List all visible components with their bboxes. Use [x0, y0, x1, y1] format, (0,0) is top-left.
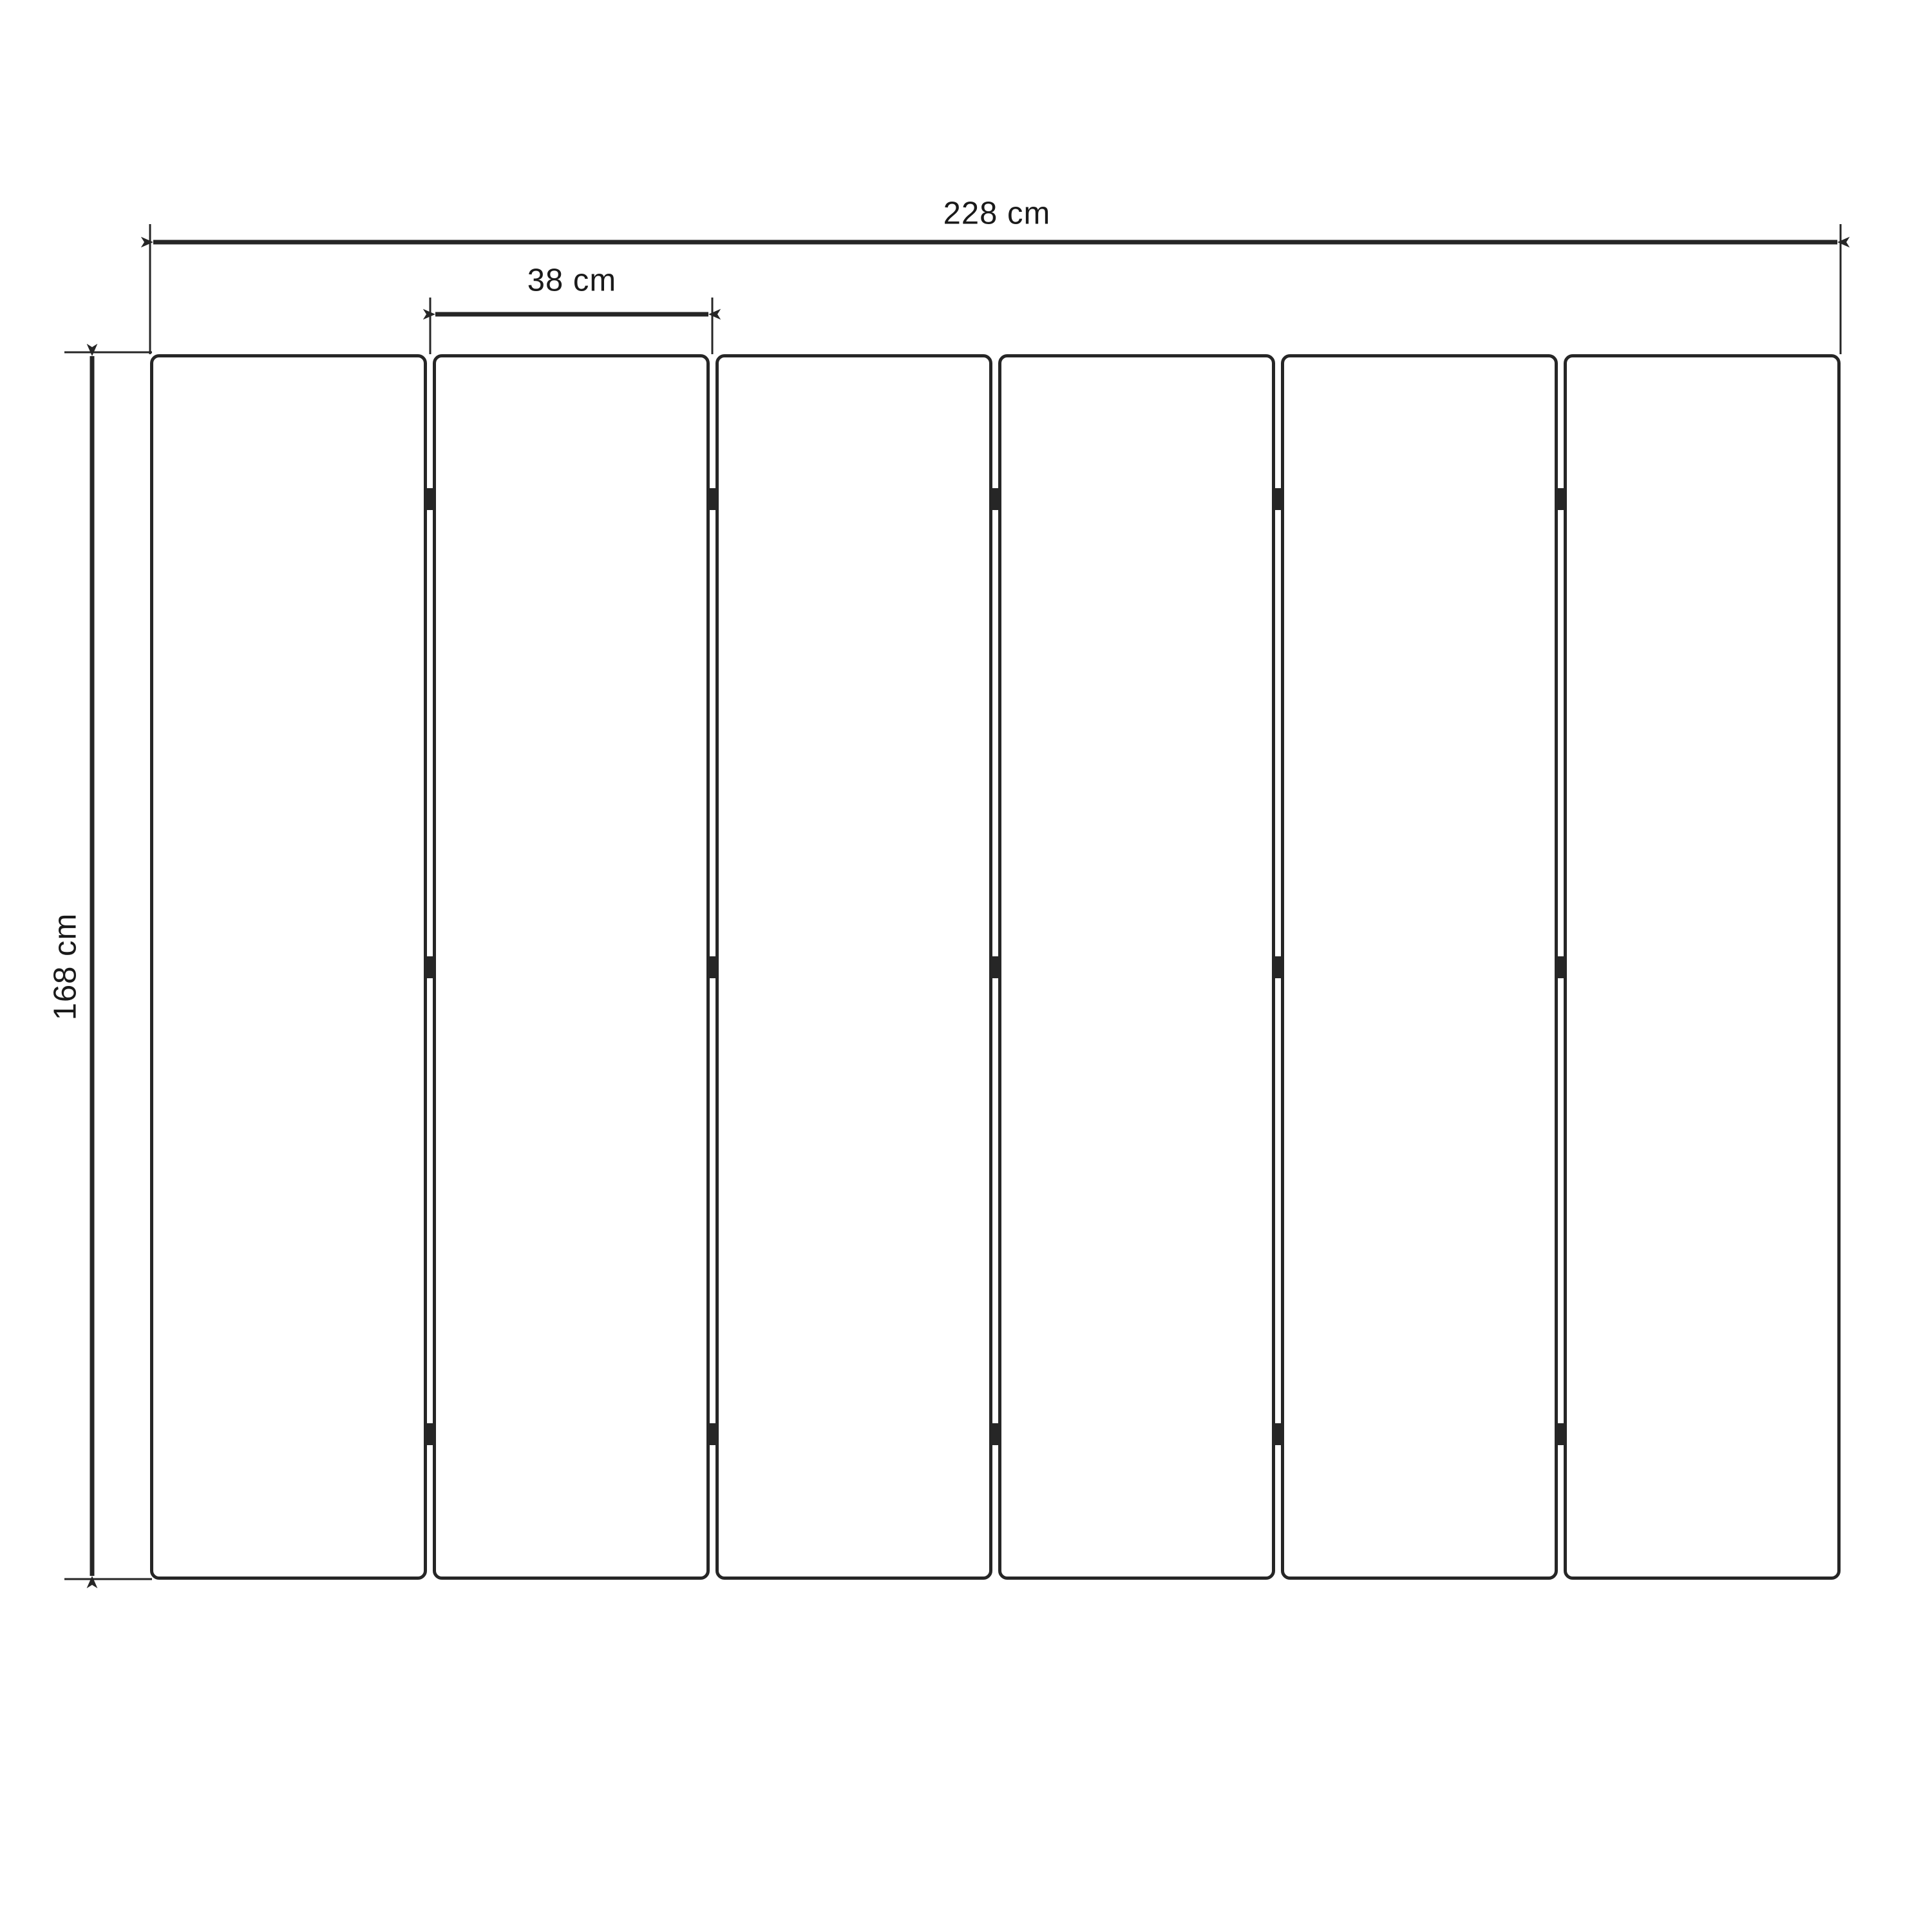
total-width-label: 228 cm	[943, 198, 1051, 230]
height-label: 168 cm	[50, 913, 82, 1021]
screen-panel-4	[998, 354, 1275, 1580]
panel-width-dimension	[430, 298, 712, 354]
total-width-dimension	[150, 224, 1841, 354]
dimension-drawing: 228 cm 38 cm 168 cm	[0, 0, 1932, 1932]
screen-panel-3	[715, 354, 992, 1580]
screen-panel-6	[1564, 354, 1841, 1580]
screen-panel-5	[1281, 354, 1558, 1580]
panel-width-label: 38 cm	[527, 265, 616, 297]
screen-panel-2	[433, 354, 710, 1580]
screen-panel-1	[150, 354, 427, 1580]
panel-row	[150, 354, 1841, 1580]
